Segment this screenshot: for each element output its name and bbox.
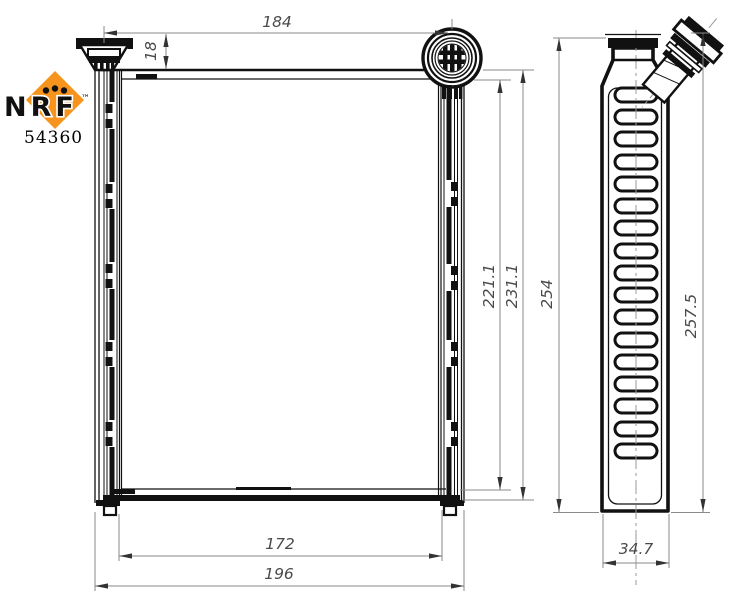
core-top-edge (100, 70, 464, 79)
dim-inlet-height: 18 (142, 34, 169, 69)
front-view (76, 29, 481, 515)
dim-overall-height: 231.1 (462, 70, 534, 500)
trademark-symbol: ™ (81, 94, 90, 104)
dim-inlet-height-label: 18 (142, 41, 160, 61)
left-pipe-column (95, 66, 122, 515)
dim-core-height-label: 221.1 (480, 264, 498, 308)
dim-side-height: 254 (538, 38, 606, 513)
dim-top-width-label: 184 (262, 13, 292, 31)
dim-core-width-label: 172 (265, 535, 295, 553)
dim-side-height-label: 254 (538, 279, 556, 309)
part-number: 54360 (24, 128, 83, 148)
dim-side-overall-height-label: 257.5 (682, 294, 700, 338)
dim-overall-height-label: 231.1 (503, 264, 521, 308)
right-pipe-column (439, 79, 465, 515)
brand-block: NRF ™ 54360 (4, 71, 90, 148)
technical-drawing: 184 18 221.1 231.1 (0, 0, 737, 600)
dim-top-width: 184 (104, 13, 452, 43)
dim-depth-label: 34.7 (619, 540, 654, 558)
side-view (602, 2, 737, 585)
core-bottom-edge (103, 487, 460, 501)
dim-side-overall-height: 257.5 (671, 33, 710, 513)
dim-overall-width-label: 196 (264, 565, 294, 583)
nrf-logo-text: NRF (4, 92, 78, 123)
outlet-connector (423, 29, 481, 99)
dim-core-width: 172 (119, 510, 442, 561)
